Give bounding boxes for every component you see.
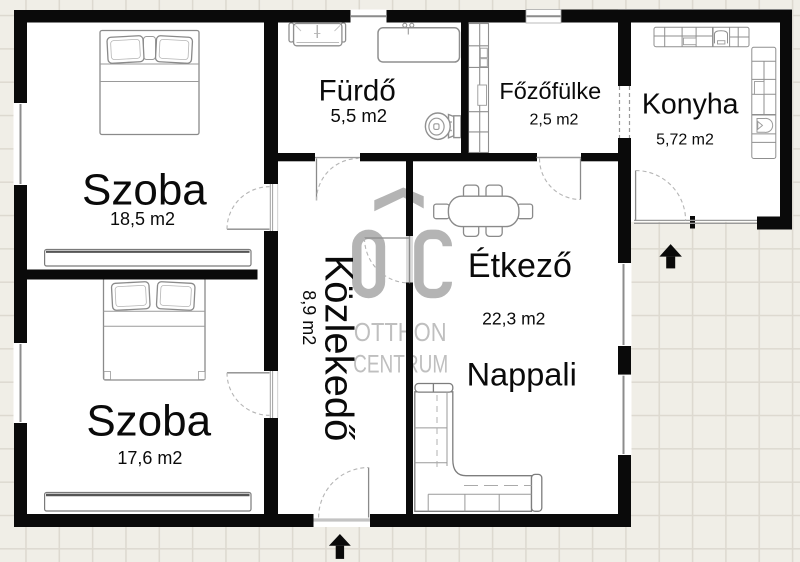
svg-text:2,5 m2: 2,5 m2 (530, 112, 579, 129)
svg-text:Fürdő: Fürdő (319, 74, 396, 107)
svg-text:22,3 m2: 22,3 m2 (482, 309, 545, 329)
svg-text:Szoba: Szoba (82, 165, 207, 214)
svg-text:5,5 m2: 5,5 m2 (331, 105, 388, 126)
svg-text:CENTRUM: CENTRUM (353, 351, 448, 379)
svg-text:5,72 m2: 5,72 m2 (656, 131, 714, 148)
svg-text:Közlekedő: Közlekedő (317, 255, 361, 442)
svg-text:18,5 m2: 18,5 m2 (110, 209, 175, 229)
svg-text:Főzőfülke: Főzőfülke (499, 78, 601, 104)
svg-text:OTTHON: OTTHON (354, 317, 447, 347)
svg-text:Konyha: Konyha (642, 89, 739, 121)
svg-text:Szoba: Szoba (86, 397, 211, 446)
svg-text:17,6 m2: 17,6 m2 (117, 448, 182, 468)
svg-text:Nappali: Nappali (467, 356, 577, 392)
svg-text:Étkező: Étkező (468, 247, 572, 285)
svg-text:8,9 m2: 8,9 m2 (299, 290, 319, 345)
